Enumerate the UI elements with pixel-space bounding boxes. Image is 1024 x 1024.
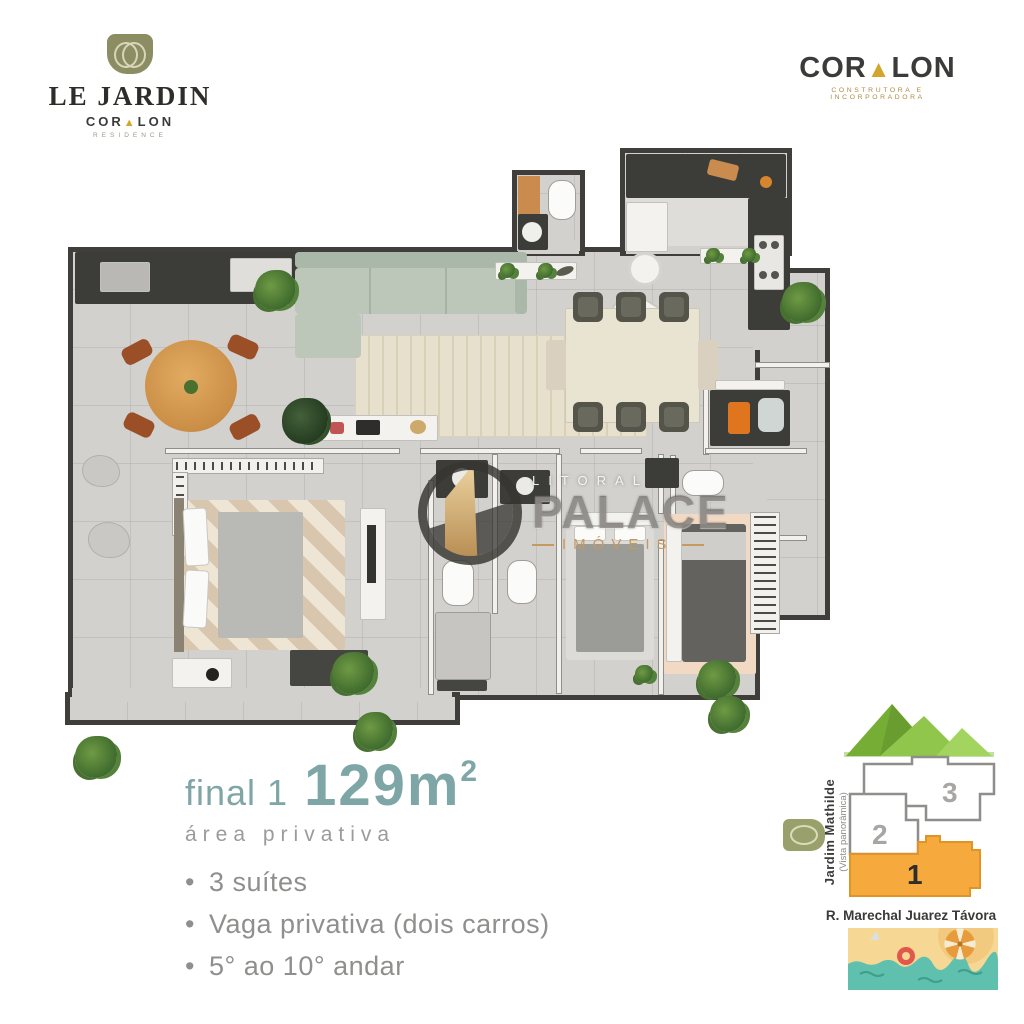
burner [759,241,767,249]
unit-3-number: 3 [942,777,958,808]
plant [355,712,393,750]
master-sheet [218,512,303,638]
bedroom-wall [165,448,400,454]
unit-2-number: 2 [872,819,888,850]
watermark-text: LITORAL PALACE IMÓVEIS [532,473,730,553]
partition-wall [755,362,830,368]
dining-chair [659,292,689,322]
dining-end-chair [546,340,566,390]
coralon-tagline: CONSTRUTORA E INCORPORADORA [795,87,960,101]
side-table [628,252,662,286]
feature-item: Vaga privativa (dois carros) [185,909,550,940]
feature-list: 3 suítes Vaga privativa (dois carros) 5°… [185,867,550,982]
tv [356,420,380,435]
mountains-icon [840,696,1010,760]
gold-triangle-icon: ▲ [124,117,138,129]
master-desk [172,658,232,688]
unit-info: final 1 129m2 área privativa 3 suítes Va… [185,752,550,982]
laundry-sink [758,398,784,432]
shower-tray [435,612,491,680]
feature-item: 3 suítes [185,867,550,898]
dark-mat [437,680,487,691]
page: { "header": { "left_logo": { "title": "L… [0,0,1024,1024]
dining-chair [616,292,646,322]
lejardin-logo: LE JARDIN COR▲LON RESIDENCE [40,34,220,139]
unit-1-number: 1 [907,859,923,890]
closet-rail [172,458,324,474]
watermark: LITORAL PALACE IMÓVEIS [418,458,718,568]
brand-post: LON [892,52,956,84]
master-pillow [182,569,209,628]
decor-red [330,422,344,434]
sofa-back [295,252,523,268]
area-number: 129m [304,753,460,818]
unit-label: final 1 [185,772,288,814]
lejardin-emblem-icon [107,34,153,74]
fruit-bowl [760,176,772,188]
lejardin-tagline: RESIDENCE [40,132,220,139]
lavabo-counter [518,176,540,216]
area-note: área privativa [185,823,550,847]
wardrobe [750,512,780,634]
plant [710,696,746,732]
brand-pre: COR [86,114,124,129]
plant [75,736,117,778]
master-pillow [182,507,209,566]
lavabo-sink [522,222,542,242]
dining-chair [573,292,603,322]
coralon-brand: COR▲LON [795,52,960,85]
area-exponent: 2 [460,755,479,788]
dining-chair [659,402,689,432]
toilet [548,180,576,220]
watermark-imoveis: IMÓVEIS [532,536,730,553]
partition-wall [705,448,807,454]
floor-join [72,688,452,702]
area-value: 129m2 [304,752,479,819]
table-centerpiece [184,380,198,394]
bedroom-wall [420,448,560,454]
laundry-shelf [715,380,785,390]
coralon-logo: COR▲LON CONSTRUTORA E INCORPORADORA [795,52,960,101]
beach-icon [848,928,998,990]
burner [759,271,767,279]
dining-chair [573,402,603,432]
burner [771,241,779,249]
washing-machine [728,402,750,434]
dining-chair [616,402,646,432]
brand-pre: COR [799,52,866,84]
desk-chair [206,668,219,681]
brand-post: LON [138,114,174,129]
bedroom-wall [580,448,642,454]
feature-item: 5° ao 10° andar [185,951,550,982]
decor-basket [410,420,426,434]
rock [82,455,120,487]
sofa-seat [295,268,523,314]
gold-triangle-icon: ▲ [867,56,892,83]
lejardin-brand: COR▲LON [40,114,220,129]
building-units-diagram: 3 2 1 [822,754,1012,904]
location-diagram: Jardim Mathilde (Vista panorâmica) 3 2 1… [770,692,1020,1002]
microwave [100,262,150,292]
lejardin-emblem-small [783,819,825,851]
floor-plan: LITORAL PALACE IMÓVEIS [60,140,850,755]
lejardin-title: LE JARDIN [40,81,220,112]
sofa-chaise [295,314,361,358]
dresser-tv [367,525,376,583]
watermark-palace: PALACE [532,488,730,536]
partition-wall [703,385,709,455]
litoral-palace-logo-icon [418,461,522,565]
fridge [626,202,668,252]
rock [88,522,130,558]
burner [771,271,779,279]
street-label: R. Marechal Juarez Távora [806,908,1016,923]
